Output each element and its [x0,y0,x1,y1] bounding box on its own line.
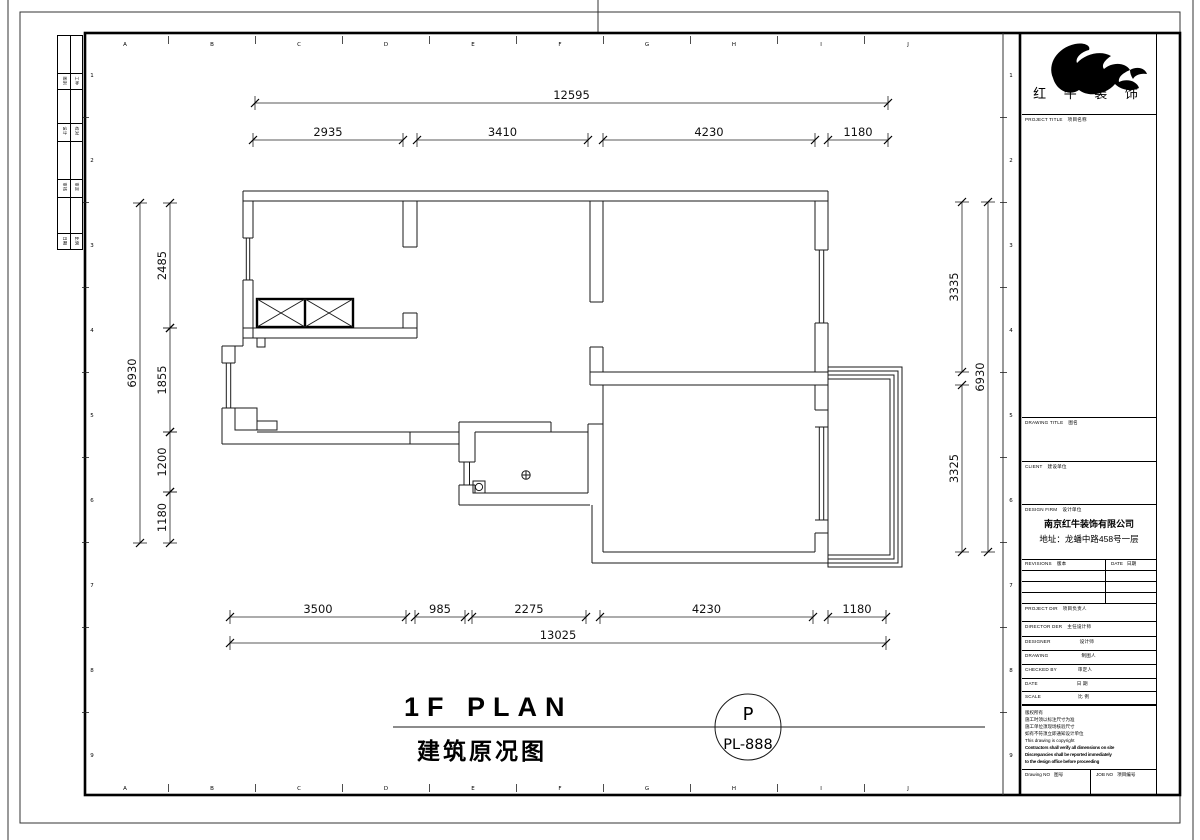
grid-letter-bottom: I [820,786,822,792]
drawing-no-label-cn: 图号 [1054,772,1063,778]
note-line: This drawing is copyright [1025,737,1156,744]
grid-number-right: 2 [1009,158,1013,164]
grid-number-left: 4 [90,328,94,334]
dimension-label: 3500 [303,602,332,616]
window-bedroom2 [815,250,828,323]
person-row-label-cn: 设计师 [1080,639,1094,645]
linework-canvas: 1259529353410423011803500985227542301180… [0,0,1200,840]
grid-number-right: 5 [1009,413,1013,419]
grid-letter-top: J [906,42,909,48]
dimension-label: 3325 [947,454,961,483]
drawing-title-box: DRAWING TITLE图名 [1022,418,1156,462]
revisions-label-en: REVISIONS [1025,561,1052,567]
note-line: 版权所有 [1025,709,1156,716]
grid-number-left: 9 [90,753,94,759]
design-firm-label-en: DESIGN FIRM [1025,507,1057,513]
dimension-label: 3335 [947,272,961,301]
person-row-label-en: DESIGNER [1025,639,1051,645]
grid-letter-top: E [471,42,475,48]
grid-letter-top: H [732,42,736,48]
grid-letter-bottom: A [123,786,127,792]
note-line: 施工单位须现场核验尺寸 [1025,723,1156,730]
title-block: 红 牛 装 饰 PROJECT TITLE项目名称 DRAWING TITLE图… [1022,33,1157,795]
grid-number-right: 1 [1009,73,1013,79]
grid-number-right: 4 [1009,328,1013,334]
shaft-box [257,299,353,327]
person-row: DIRECTOR DER主任设计师 [1022,622,1156,637]
logo-box: 红 牛 装 饰 [1022,35,1156,115]
grid-letter-top: C [297,42,301,48]
project-title-label-en: PROJECT TITLE [1025,117,1063,123]
revisions-label-cn: 版本 [1057,561,1067,567]
person-row: DATE日 期 [1022,679,1156,692]
person-row-label-cn: 制图人 [1081,653,1095,659]
person-row-label-cn: 审定人 [1078,667,1092,673]
person-row: CHECKED BY审定人 [1022,665,1156,679]
floor-drain-icon [475,483,482,490]
dimension-label: 2275 [514,602,543,616]
dimension-label: 2935 [313,125,342,139]
strip-cell: 日期 [61,237,67,246]
grid-letter-bottom: E [471,786,475,792]
firm-name: 南京红牛装饰有限公司 [1022,517,1156,530]
person-row-label-en: DATE [1025,681,1038,687]
grid-number-left: 5 [90,413,94,419]
person-row-label-en: DIRECTOR DER [1025,624,1062,630]
grid-number-left: 7 [90,583,94,589]
sheet-ref-number: PL-888 [723,737,772,753]
plan-title-group: 1F PLAN 建筑原况图 P PL-888 [393,692,985,764]
grid-number-left: 3 [90,243,94,249]
strip-cell: 审定 [73,183,79,192]
project-title-label-cn: 项目名称 [1068,117,1087,123]
date-col-label-en: DATE [1111,561,1123,567]
person-row-label-cn: 比 例 [1078,694,1089,700]
window-bedroom1 [243,238,253,280]
floor-plan [222,191,902,567]
drawing-no-divider [1090,770,1091,795]
grid-number-right: 7 [1009,583,1013,589]
note-line: 如有不符须立即通知设计单位 [1025,730,1156,737]
dimension-label: 6930 [973,362,987,391]
person-row-label-en: DRAWING [1025,653,1048,659]
grid-letter-top: G [645,42,649,48]
logo-text: 红 牛 装 饰 [1033,83,1145,102]
person-row: DESIGNER设计师 [1022,637,1156,651]
grid-letter-top: I [820,42,822,48]
strip-cell: 图别 [61,77,67,86]
drawing-sheet: 1259529353410423011803500985227542301180… [0,0,1200,840]
drawing-no-label-en: Drawing NO [1025,772,1050,778]
plan-title-en: 1F PLAN [404,692,573,722]
grid-number-left: 8 [90,668,94,674]
dimension-label: 2485 [155,251,169,280]
firm-address: 地址：龙蟠中路458号一层 [1022,533,1156,545]
dimension-label: 6930 [125,358,139,387]
drain-symbol-icon [522,471,530,479]
outer-border [20,12,1180,823]
drawing-no-box: Drawing NO图号 JOB NO项目编号 [1022,770,1156,795]
wall-notch [257,338,265,347]
grid-number-right: 9 [1009,753,1013,759]
grid-number-left: 6 [90,498,94,504]
design-firm-box: DESIGN FIRM设计单位 南京红牛装饰有限公司 地址：龙蟠中路458号一层 [1022,505,1156,560]
design-firm-label-cn: 设计单位 [1062,507,1081,513]
dimensions-layer: 1259529353410423011803500985227542301180… [125,88,995,650]
balcony [828,367,902,567]
notes-box: 版权所有 施工时须以标注尺寸为准 施工单位须现场核验尺寸 如有不符须立即通知设计… [1022,706,1156,770]
sheet-ref-letter: P [743,704,754,725]
grid-letter-bottom: J [906,786,909,792]
drawing-title-label-en: DRAWING TITLE [1025,420,1063,426]
job-no-label-cn: 项目编号 [1117,772,1135,778]
grid-number-left: 2 [90,158,94,164]
date-col-label-cn: 日期 [1127,561,1136,567]
grid-letter-bottom: G [645,786,649,792]
person-row-label-en: SCALE [1025,694,1041,700]
strip-cell: 审核 [61,183,67,192]
project-title-box: PROJECT TITLE项目名称 [1022,115,1156,418]
grid-letter-top: D [384,42,388,48]
grid-letter-bottom: C [297,786,301,792]
dimension-label: 3410 [488,125,517,139]
person-row-label-cn: 日 期 [1077,681,1088,687]
edge-signature-strip: 图别 工种 设计 校对 审核 审定 日期 比例 [57,35,83,250]
grid-number-left: 1 [90,73,94,79]
bathroom [459,422,590,505]
note-line: to the design office before proceeding [1025,758,1156,765]
dimension-label: 4230 [694,125,723,139]
strip-cell: 工种 [73,77,79,86]
dimension-label: 1200 [155,447,169,476]
person-row-label-cn: 项目负责人 [1063,606,1087,612]
grid-number-right: 3 [1009,243,1013,249]
person-row: DRAWING制图人 [1022,651,1156,665]
revisions-divider [1105,560,1106,604]
job-no-label-en: JOB NO [1096,772,1113,778]
person-row-label-cn: 主任设计师 [1067,624,1091,630]
grid-number-right: 8 [1009,668,1013,674]
dimension-label: 1180 [155,503,169,532]
dimension-label: 13025 [540,628,577,642]
strip-cell: 设计 [61,127,67,136]
dimension-label: 12595 [553,88,590,102]
revisions-table: REVISIONS版本 DATE日期 [1022,560,1156,604]
client-box: CLIENT建设单位 [1022,462,1156,505]
dimension-label: 985 [429,602,451,616]
grid-letter-top: F [558,42,561,48]
plan-title-cn: 建筑原况图 [417,738,547,764]
strip-cell: 校对 [73,127,79,136]
window-living [222,363,235,408]
client-label-en: CLIENT [1025,464,1043,470]
person-row: PROJECT DIR项目负责人 [1022,604,1156,622]
drawing-title-label-cn: 图名 [1068,420,1078,426]
dimension-label: 1180 [843,125,872,139]
dimension-label: 4230 [692,602,721,616]
note-line: 施工时须以标注尺寸为准 [1025,716,1156,723]
grid-letter-top: A [123,42,127,48]
person-row-label-en: CHECKED BY [1025,667,1057,673]
dimension-label: 1855 [155,365,169,394]
grid-letter-bottom: B [210,786,214,792]
entry-niche [235,408,257,430]
note-line: Contractors shall verify all dimensions … [1025,744,1156,751]
grid-letter-bottom: D [384,786,388,792]
entry-step [257,421,277,430]
grid-number-right: 6 [1009,498,1013,504]
strip-cell: 比例 [73,237,79,246]
client-label-cn: 建设单位 [1048,464,1067,470]
grid-letter-bottom: F [558,786,561,792]
grid-letter-bottom: H [732,786,736,792]
balcony-door [815,410,828,533]
note-line: Discrepancies shall be reported immediat… [1025,751,1156,758]
main-frame [85,33,1180,795]
person-row: SCALE比 例 [1022,692,1156,706]
dimension-label: 1180 [842,602,871,616]
grid-letter-top: B [210,42,214,48]
person-row-label-en: PROJECT DIR [1025,606,1058,612]
